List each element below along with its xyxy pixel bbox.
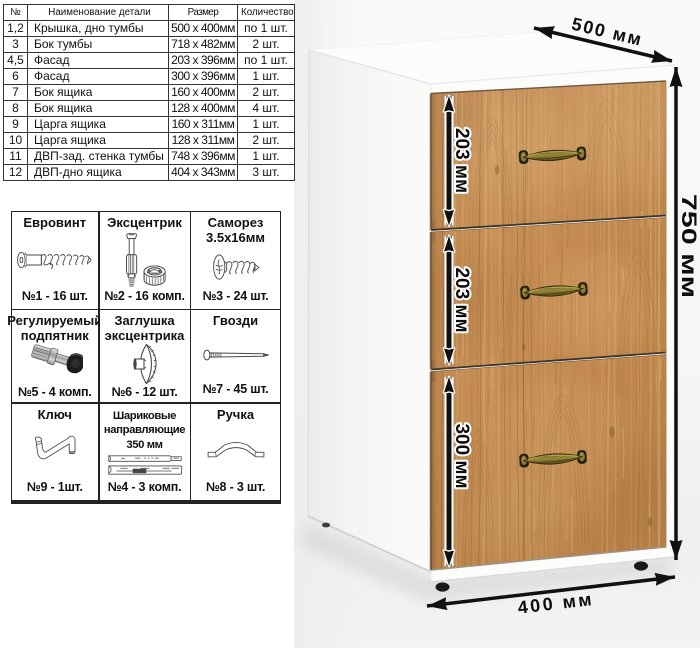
svg-text:203 мм: 203 мм — [451, 267, 472, 332]
svg-text:300 мм: 300 мм — [451, 423, 472, 488]
svg-text:750 мм: 750 мм — [677, 194, 700, 298]
svg-text:203 мм: 203 мм — [451, 128, 472, 193]
